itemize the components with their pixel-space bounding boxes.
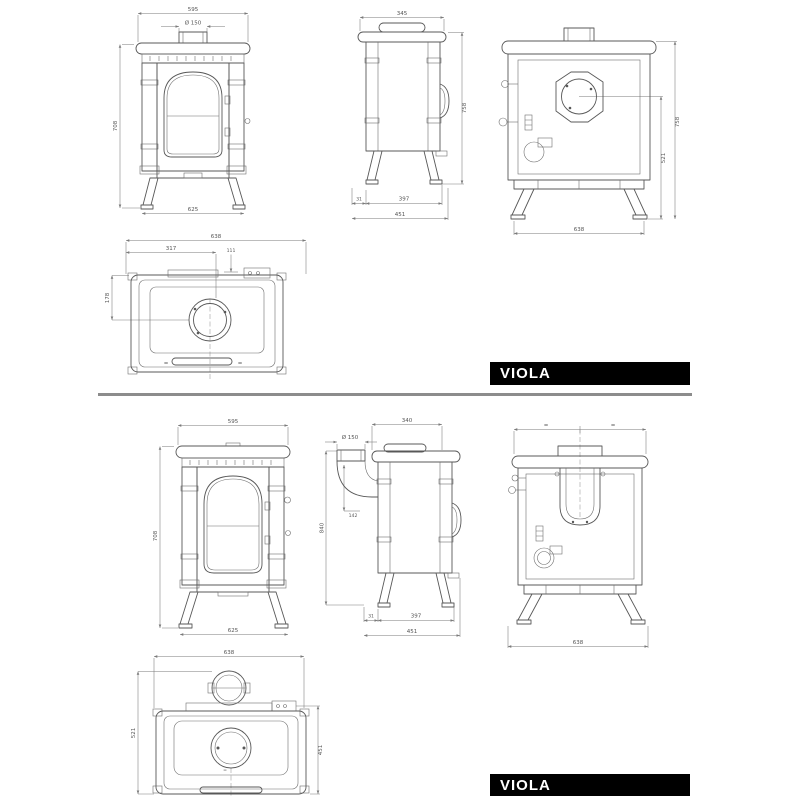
front-handle bbox=[172, 358, 232, 365]
dim-width-bottom: 625 bbox=[228, 628, 239, 634]
front-leg bbox=[367, 151, 382, 180]
flue-mount-plate bbox=[556, 72, 603, 122]
top-plate-outline bbox=[131, 275, 283, 372]
flue-blank-ring-inner bbox=[215, 732, 247, 764]
right-leg bbox=[268, 592, 286, 624]
door-glass bbox=[164, 72, 222, 157]
dim-flue-center-x: 317 bbox=[166, 246, 177, 252]
dim-leg-offset: 31 bbox=[356, 197, 362, 203]
vent-louver bbox=[536, 526, 543, 541]
stove-top-body bbox=[128, 268, 286, 374]
right-foot bbox=[275, 624, 288, 628]
dim-depth-body: 451 bbox=[318, 745, 324, 756]
damper-knob bbox=[512, 475, 518, 481]
secondary-air-port bbox=[534, 548, 554, 568]
side-view-rear-exit: 340 Ø 150 142 840 31 397 451 bbox=[320, 413, 480, 658]
equal-mark-center: = bbox=[223, 768, 227, 773]
left-foot bbox=[511, 215, 525, 219]
frieze bbox=[182, 458, 284, 467]
right-leg bbox=[228, 178, 244, 205]
bottom-rail bbox=[197, 585, 269, 592]
dim-flue-center-y: 178 bbox=[105, 292, 111, 303]
brand-name: VIOLA bbox=[490, 365, 551, 382]
right-column bbox=[229, 63, 244, 171]
top-plate bbox=[358, 32, 446, 42]
door bbox=[157, 63, 229, 171]
dim-depth-overall: 451 bbox=[407, 629, 418, 635]
hinge-strip bbox=[186, 703, 272, 711]
front-view-rear-exit: 595 708 625 bbox=[138, 416, 328, 641]
equal-mark-right: = bbox=[238, 361, 243, 367]
stove-side-body bbox=[358, 23, 449, 184]
dim-flue-height: 840 bbox=[320, 522, 326, 533]
door-glass bbox=[204, 476, 262, 573]
dim-leg-offset: 31 bbox=[368, 614, 374, 620]
rear-leg bbox=[436, 573, 451, 603]
latch-plate bbox=[272, 701, 296, 711]
dimensions: 595 Ø 150 708 625 bbox=[113, 7, 248, 214]
stove-front-body bbox=[176, 443, 291, 628]
stove-side-body bbox=[337, 444, 461, 607]
technical-drawing-page: 595 Ø 150 708 625 bbox=[0, 0, 800, 800]
front-leg bbox=[379, 573, 394, 603]
side-view-top-exit: 345 758 31 397 451 bbox=[322, 8, 472, 238]
damper-knob bbox=[502, 81, 509, 88]
secondary-air-port bbox=[524, 142, 544, 162]
dimensions: = = 638 bbox=[508, 423, 648, 648]
door-knob bbox=[245, 119, 250, 124]
right-leg bbox=[618, 594, 642, 620]
brand-label-bar: VIOLA bbox=[490, 362, 690, 385]
dim-depth-top: 345 bbox=[397, 11, 408, 17]
top-dome bbox=[379, 23, 425, 32]
stove-back-body bbox=[499, 28, 656, 219]
dim-height: 708 bbox=[153, 530, 159, 541]
flue-ring-outer bbox=[189, 299, 231, 341]
air-control-knob bbox=[509, 487, 516, 494]
stove-front-body bbox=[136, 32, 250, 209]
dim-flue-diameter: Ø 150 bbox=[342, 434, 359, 441]
dim-width-top: 595 bbox=[188, 7, 199, 13]
left-foot bbox=[141, 205, 153, 209]
panel-divider bbox=[98, 393, 692, 396]
dim-width-overall: 638 bbox=[211, 234, 222, 240]
dim-flue-drop: 142 bbox=[349, 513, 358, 519]
dim-depth-overall: 451 bbox=[395, 212, 406, 218]
dim-width-bottom: 638 bbox=[573, 640, 584, 646]
rear-foot bbox=[442, 603, 454, 607]
top-plate-outline bbox=[156, 711, 306, 794]
right-leg bbox=[624, 189, 646, 215]
left-leg bbox=[518, 594, 542, 620]
dim-leg-span: 397 bbox=[399, 197, 410, 203]
top-plate bbox=[176, 446, 290, 458]
right-foot bbox=[633, 215, 647, 219]
dim-depth-with-flue: 521 bbox=[131, 728, 137, 739]
right-foot bbox=[233, 205, 245, 209]
left-column bbox=[142, 63, 157, 171]
left-foot bbox=[179, 624, 192, 628]
dim-flue-center-height: 521 bbox=[661, 153, 667, 164]
left-column bbox=[182, 467, 197, 585]
left-foot bbox=[517, 620, 531, 624]
dim-width-bottom: 625 bbox=[188, 207, 199, 213]
top-opening bbox=[174, 721, 288, 775]
front-foot bbox=[378, 603, 390, 607]
top-plate bbox=[136, 43, 250, 54]
equal-mark-left: = bbox=[544, 423, 549, 429]
left-leg bbox=[180, 592, 198, 624]
top-plate bbox=[502, 41, 656, 54]
equal-mark-left: = bbox=[164, 361, 169, 367]
brand-name: VIOLA bbox=[490, 777, 551, 794]
top-plate bbox=[372, 451, 460, 462]
rear-leg bbox=[424, 151, 439, 180]
frieze bbox=[142, 54, 244, 63]
latch-plate bbox=[244, 268, 270, 278]
left-leg bbox=[143, 178, 158, 205]
door-knob bbox=[285, 497, 291, 503]
back-view-rear-exit: = = 638 bbox=[486, 418, 676, 653]
dim-rear-offset: 111 bbox=[227, 248, 236, 254]
back-view-top-exit: 521 758 638 bbox=[478, 12, 683, 240]
ash-lip bbox=[218, 592, 248, 596]
rear-foot bbox=[430, 180, 442, 184]
dim-height: 758 bbox=[675, 116, 681, 127]
dim-flue-diameter: Ø 150 bbox=[185, 20, 202, 27]
front-view-top-exit: 595 Ø 150 708 625 bbox=[98, 4, 288, 219]
dim-depth-top: 340 bbox=[402, 418, 413, 424]
bottom-rail bbox=[157, 171, 229, 178]
side-panel bbox=[378, 462, 452, 573]
right-column bbox=[269, 467, 284, 585]
top-view-top-exit: 638 317 111 178 = = bbox=[98, 232, 323, 382]
dim-height: 758 bbox=[462, 102, 468, 113]
dim-width-overall: 638 bbox=[224, 650, 235, 656]
equal-mark-right: = bbox=[611, 423, 616, 429]
flue-blank bbox=[226, 443, 240, 446]
right-foot bbox=[631, 620, 645, 624]
dim-width-bottom: 638 bbox=[574, 227, 585, 233]
top-view-rear-exit: 638 521 451 = bbox=[126, 648, 331, 798]
stove-back-body bbox=[509, 446, 649, 624]
vent-louver bbox=[525, 115, 532, 130]
side-panel bbox=[366, 42, 440, 151]
dim-height: 708 bbox=[113, 120, 119, 131]
flue-collar bbox=[564, 28, 594, 41]
air-control-knob bbox=[499, 118, 507, 126]
dim-width-top: 595 bbox=[228, 419, 239, 425]
dimensions: 638 521 451 = bbox=[131, 650, 324, 796]
dim-leg-span: 397 bbox=[411, 614, 422, 620]
door-knob bbox=[286, 531, 291, 536]
brand-label-bar: VIOLA bbox=[490, 774, 690, 796]
dimensions: 595 708 625 bbox=[153, 419, 288, 635]
hinge-strip bbox=[168, 270, 218, 277]
front-foot bbox=[366, 180, 378, 184]
left-leg bbox=[512, 189, 534, 215]
